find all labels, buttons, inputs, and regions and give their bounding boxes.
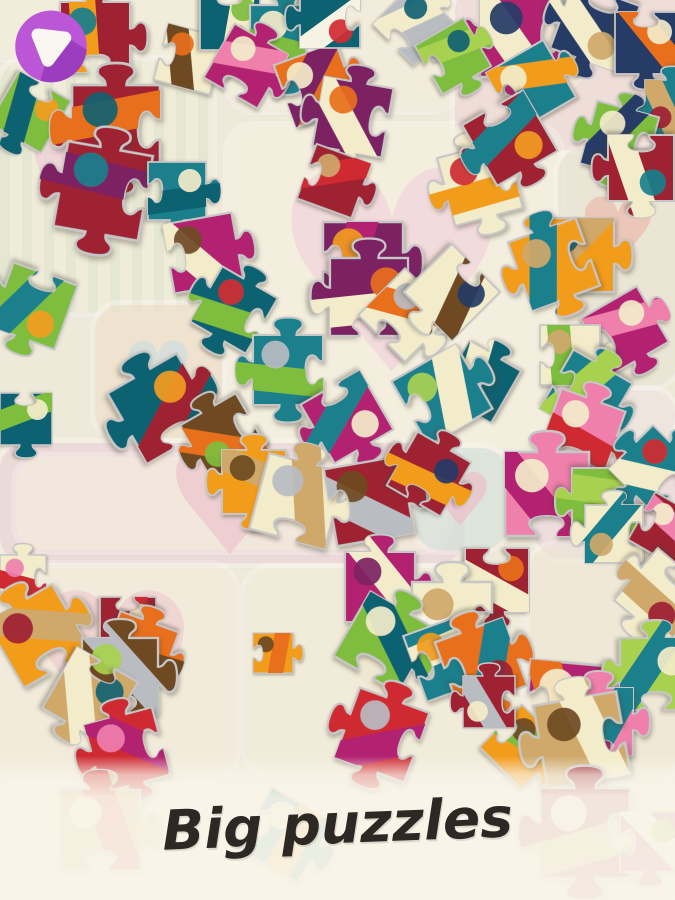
puzzle-game-screen: ♥♥♥♥♥♥♥♥♥♥ Big puzzles — [0, 0, 675, 900]
app-logo-button[interactable] — [12, 9, 90, 87]
puzzle-piece[interactable] — [0, 233, 86, 365]
banner-title: Big puzzles — [0, 779, 675, 869]
bottom-banner: Big puzzles — [0, 756, 675, 900]
puzzle-piece[interactable] — [253, 621, 303, 687]
puzzle-piece[interactable] — [0, 388, 66, 458]
